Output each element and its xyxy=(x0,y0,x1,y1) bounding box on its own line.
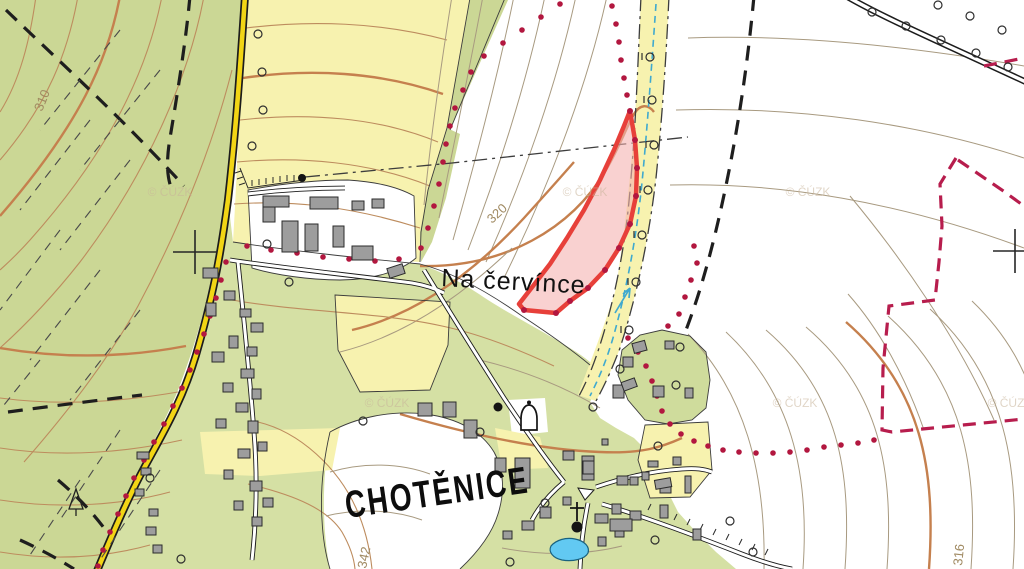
village-buildings-part xyxy=(685,388,693,398)
village-buildings-part xyxy=(258,442,267,451)
village-buildings-part xyxy=(216,419,226,428)
parcel-vertex-dots-part xyxy=(627,221,633,227)
parcel-boundary-dots-part xyxy=(223,259,229,265)
village-buildings-part xyxy=(612,504,621,514)
village-buildings-part xyxy=(234,501,243,510)
contour-label-316: 316 xyxy=(950,543,967,566)
village-buildings-part xyxy=(252,389,261,399)
village-buildings-part xyxy=(617,476,628,485)
parcel-boundary-dots-part xyxy=(320,254,326,260)
parcel-boundary-dots-part xyxy=(821,444,827,450)
village-buildings-part xyxy=(282,221,298,252)
parcel-boundary-dots-part xyxy=(187,367,193,373)
parcel-boundary-dots-part xyxy=(151,439,157,445)
village-buildings-part xyxy=(610,519,632,531)
cadastral-map: 310 320 342 316 © ČÚZK © ČÚZK © ČÚZK © Č… xyxy=(0,0,1024,569)
parcel-boundary-dots-part xyxy=(624,92,630,98)
watermark-text: © ČÚZK xyxy=(148,184,193,199)
village-buildings-part xyxy=(310,197,338,209)
village-buildings-part xyxy=(149,509,158,516)
village-buildings-part xyxy=(522,521,534,530)
parcel-boundary-dots-part xyxy=(682,294,688,300)
village-buildings-part xyxy=(263,498,273,507)
village-buildings-part xyxy=(623,357,633,367)
parcel-vertex-dots-part xyxy=(567,298,573,304)
parcel-vertex-dots-part xyxy=(632,137,638,143)
village-buildings-part xyxy=(540,507,551,518)
village-buildings-part xyxy=(660,505,668,518)
watermark-text: © ČÚZK xyxy=(988,395,1024,410)
parcel-boundary-dots-part xyxy=(643,363,649,369)
parcel-boundary-dots-part xyxy=(346,256,352,262)
parcel-boundary-dots-part xyxy=(838,442,844,448)
parcel-boundary-dots-part xyxy=(770,450,776,456)
parcel-boundary-dots-part xyxy=(753,450,759,456)
village-buildings-part xyxy=(206,303,216,316)
survey-point xyxy=(298,174,306,182)
village-buildings-part xyxy=(563,451,574,460)
village-buildings-part xyxy=(135,489,144,496)
village-buildings-part xyxy=(685,476,691,493)
parcel-boundary-dots-part xyxy=(452,105,458,111)
parcel-boundary-dots-part xyxy=(500,40,506,46)
parcel-boundary-dots-part xyxy=(609,3,615,9)
village-buildings-part xyxy=(443,402,456,417)
village-buildings-part xyxy=(352,201,364,210)
village-buildings-part xyxy=(653,386,664,397)
village-buildings-part xyxy=(224,291,235,300)
village-buildings-part xyxy=(236,403,248,412)
village-buildings-part xyxy=(642,472,649,480)
chapel-icon-part xyxy=(527,401,531,405)
parcel-boundary-dots-part xyxy=(621,75,627,81)
parcel-boundary-dots-part xyxy=(131,475,137,481)
parcel-boundary-dots-part xyxy=(213,295,219,301)
parcel-vertex-dots-part xyxy=(585,285,591,291)
parcel-boundary-dots-part xyxy=(538,14,544,20)
parcel-boundary-dots-part xyxy=(425,225,431,231)
parcel-boundary-dots-part xyxy=(519,27,525,33)
chapel-icon-part xyxy=(521,405,537,430)
tree-point xyxy=(494,403,503,412)
parcel-vertex-dots-part xyxy=(634,165,640,171)
watermark-text: © ČÚZK xyxy=(365,395,410,410)
parcel-boundary-dots-part xyxy=(170,403,176,409)
parcel-boundary-dots-part xyxy=(694,260,700,266)
parcel-boundary-dots-part xyxy=(871,437,877,443)
village-buildings-part xyxy=(503,531,512,539)
parcel-boundary-dots-part xyxy=(804,447,810,453)
village-patches-part xyxy=(200,428,340,476)
parcel-boundary-dots-part xyxy=(443,141,449,147)
parcel-boundary-dots-part xyxy=(115,511,121,517)
village-buildings-part xyxy=(563,497,571,505)
village-buildings-part xyxy=(263,196,289,207)
village-buildings-part xyxy=(630,477,638,485)
village-buildings-part xyxy=(352,246,373,260)
parcel-boundary-dots-part xyxy=(678,431,684,437)
watermark-text: © ČÚZK xyxy=(563,184,608,199)
parcel-boundary-dots-part xyxy=(691,438,697,444)
village-buildings-part xyxy=(248,421,258,433)
parcel-boundary-dots-part xyxy=(100,547,106,553)
parcel-boundary-dots-part xyxy=(618,57,624,63)
village-buildings-part xyxy=(146,527,156,535)
village-buildings-part xyxy=(648,461,658,467)
village-buildings-part xyxy=(665,341,674,349)
parcel-boundary-dots-part xyxy=(665,323,671,329)
watermark-text: © ČÚZK xyxy=(786,184,831,199)
village-buildings-part xyxy=(241,369,254,378)
parcel-boundary-dots-part xyxy=(440,159,446,165)
pond xyxy=(550,538,588,560)
village-buildings-part xyxy=(418,403,432,416)
parcel-boundary-dots-part xyxy=(460,87,466,93)
wayside-cross-icon-part xyxy=(572,522,583,533)
parcel-boundary-dots-part xyxy=(787,449,793,455)
village-buildings-part xyxy=(203,268,218,278)
parcel-boundary-dots-part xyxy=(659,408,665,414)
village-buildings-part xyxy=(212,352,224,362)
parcel-boundary-dots-part xyxy=(688,277,694,283)
parcel-boundary-dots-part xyxy=(201,331,207,337)
parcel-boundary-dots-part xyxy=(481,53,487,59)
village-buildings-part xyxy=(224,470,233,479)
parcel-boundary-dots-part xyxy=(557,1,563,7)
village-buildings-part xyxy=(240,309,251,317)
parcel-boundary-dots-part xyxy=(194,349,200,355)
parcel-boundary-dots-part xyxy=(179,385,185,391)
village-buildings-part xyxy=(305,224,318,251)
parcel-boundary-dots-part xyxy=(649,378,655,384)
parcel-vertex-dots-part xyxy=(521,307,527,313)
parcel-boundary-dots-part xyxy=(95,563,101,569)
village-buildings-part xyxy=(153,545,162,553)
parcel-boundary-dots-part xyxy=(123,493,129,499)
parcel-boundary-dots-part xyxy=(720,447,726,453)
parcel-boundary-dots-part xyxy=(161,421,167,427)
village-buildings-part xyxy=(598,537,606,546)
parcel-boundary-dots-part xyxy=(431,203,437,209)
parcel-boundary-dots-part xyxy=(436,181,442,187)
parcel-vertex-dots-part xyxy=(553,310,559,316)
parcel-boundary-dots-part xyxy=(107,529,113,535)
village-buildings-part xyxy=(372,199,384,208)
village-buildings-part xyxy=(693,529,701,540)
village-buildings-part xyxy=(223,383,233,392)
parcel-boundary-dots-part xyxy=(736,449,742,455)
parcel-boundary-dots-part xyxy=(396,256,402,262)
village-buildings-part xyxy=(238,449,250,458)
village-buildings-part xyxy=(250,481,262,491)
village-buildings-part xyxy=(229,336,238,348)
parcel-boundary-dots-part xyxy=(855,440,861,446)
watermark-text: © ČÚZK xyxy=(773,395,818,410)
parcel-boundary-dots-part xyxy=(613,21,619,27)
parcel-boundary-dots-part xyxy=(676,311,682,317)
village-buildings-part xyxy=(673,457,681,465)
parcel-vertex-dots-part xyxy=(616,245,622,251)
parcel-vertex-dots-part xyxy=(627,108,633,114)
parcel-boundary-dots-part xyxy=(218,277,224,283)
village-buildings-part xyxy=(252,517,262,526)
parcel-boundary-dots-part xyxy=(667,421,673,427)
parcel-boundary-dots-part xyxy=(418,245,424,251)
village-buildings-part xyxy=(602,439,608,445)
parcel-boundary-dots-part xyxy=(244,243,250,249)
map-canvas: 310 320 342 316 © ČÚZK © ČÚZK © ČÚZK © Č… xyxy=(0,0,1024,569)
parcel-vertex-dots-part xyxy=(633,193,639,199)
village-buildings-part xyxy=(333,226,344,247)
parcel-boundary-dots-part xyxy=(691,243,697,249)
parcel-boundary-dots-part xyxy=(625,335,631,341)
village-buildings-part xyxy=(247,347,257,356)
parcel-vertex-dots-part xyxy=(602,267,608,273)
village-buildings-part xyxy=(583,461,594,474)
parcel-boundary-dots-part xyxy=(468,69,474,75)
village-buildings-part xyxy=(464,420,477,438)
parcel-boundary-dots-part xyxy=(447,123,453,129)
village-buildings-part xyxy=(595,514,608,523)
village-buildings-part xyxy=(137,452,149,459)
village-buildings-part xyxy=(251,323,263,332)
parcel-boundary-dots-part xyxy=(616,39,622,45)
parcel-boundary-dots-part xyxy=(705,443,711,449)
village-buildings-part xyxy=(263,207,275,222)
